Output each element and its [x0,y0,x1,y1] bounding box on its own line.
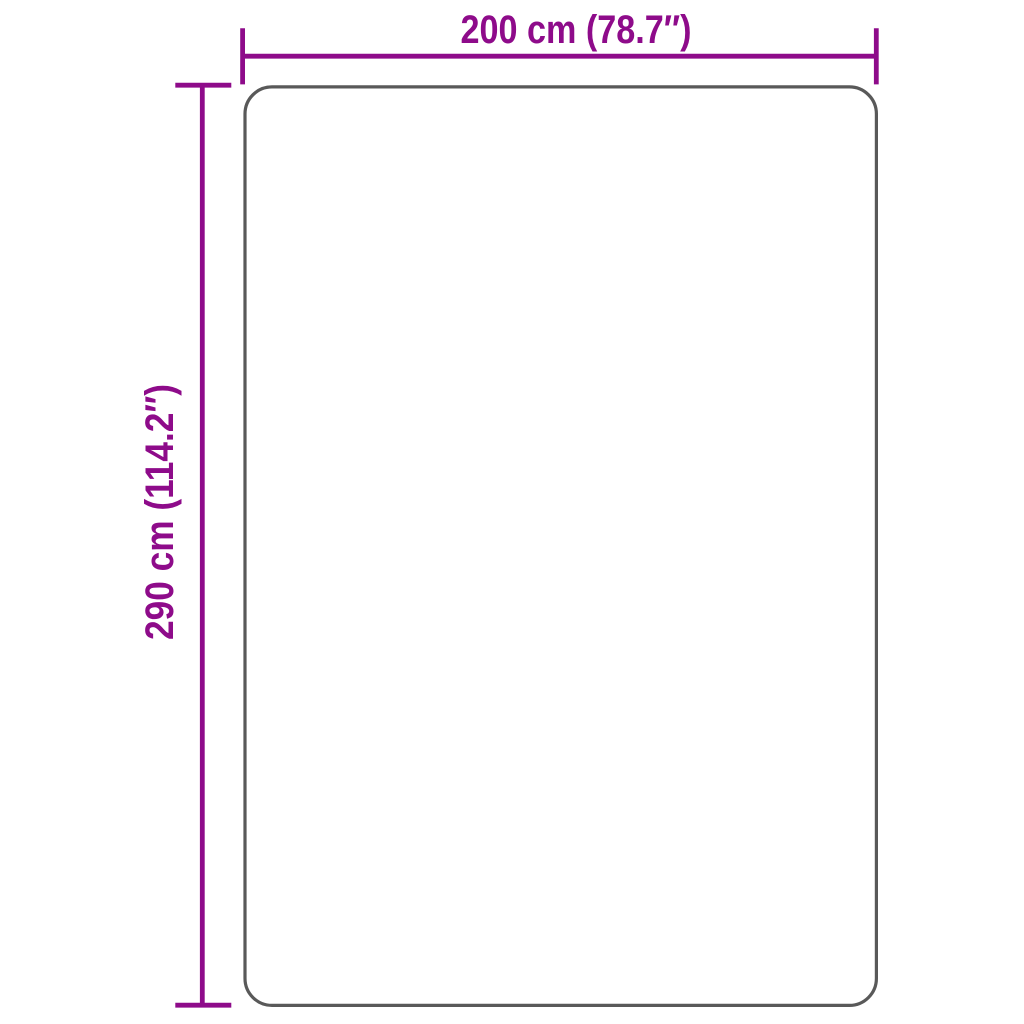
svg-text:290 cm (114.2″): 290 cm (114.2″) [138,384,182,640]
svg-text:200 cm (78.7″): 200 cm (78.7″) [461,8,692,52]
